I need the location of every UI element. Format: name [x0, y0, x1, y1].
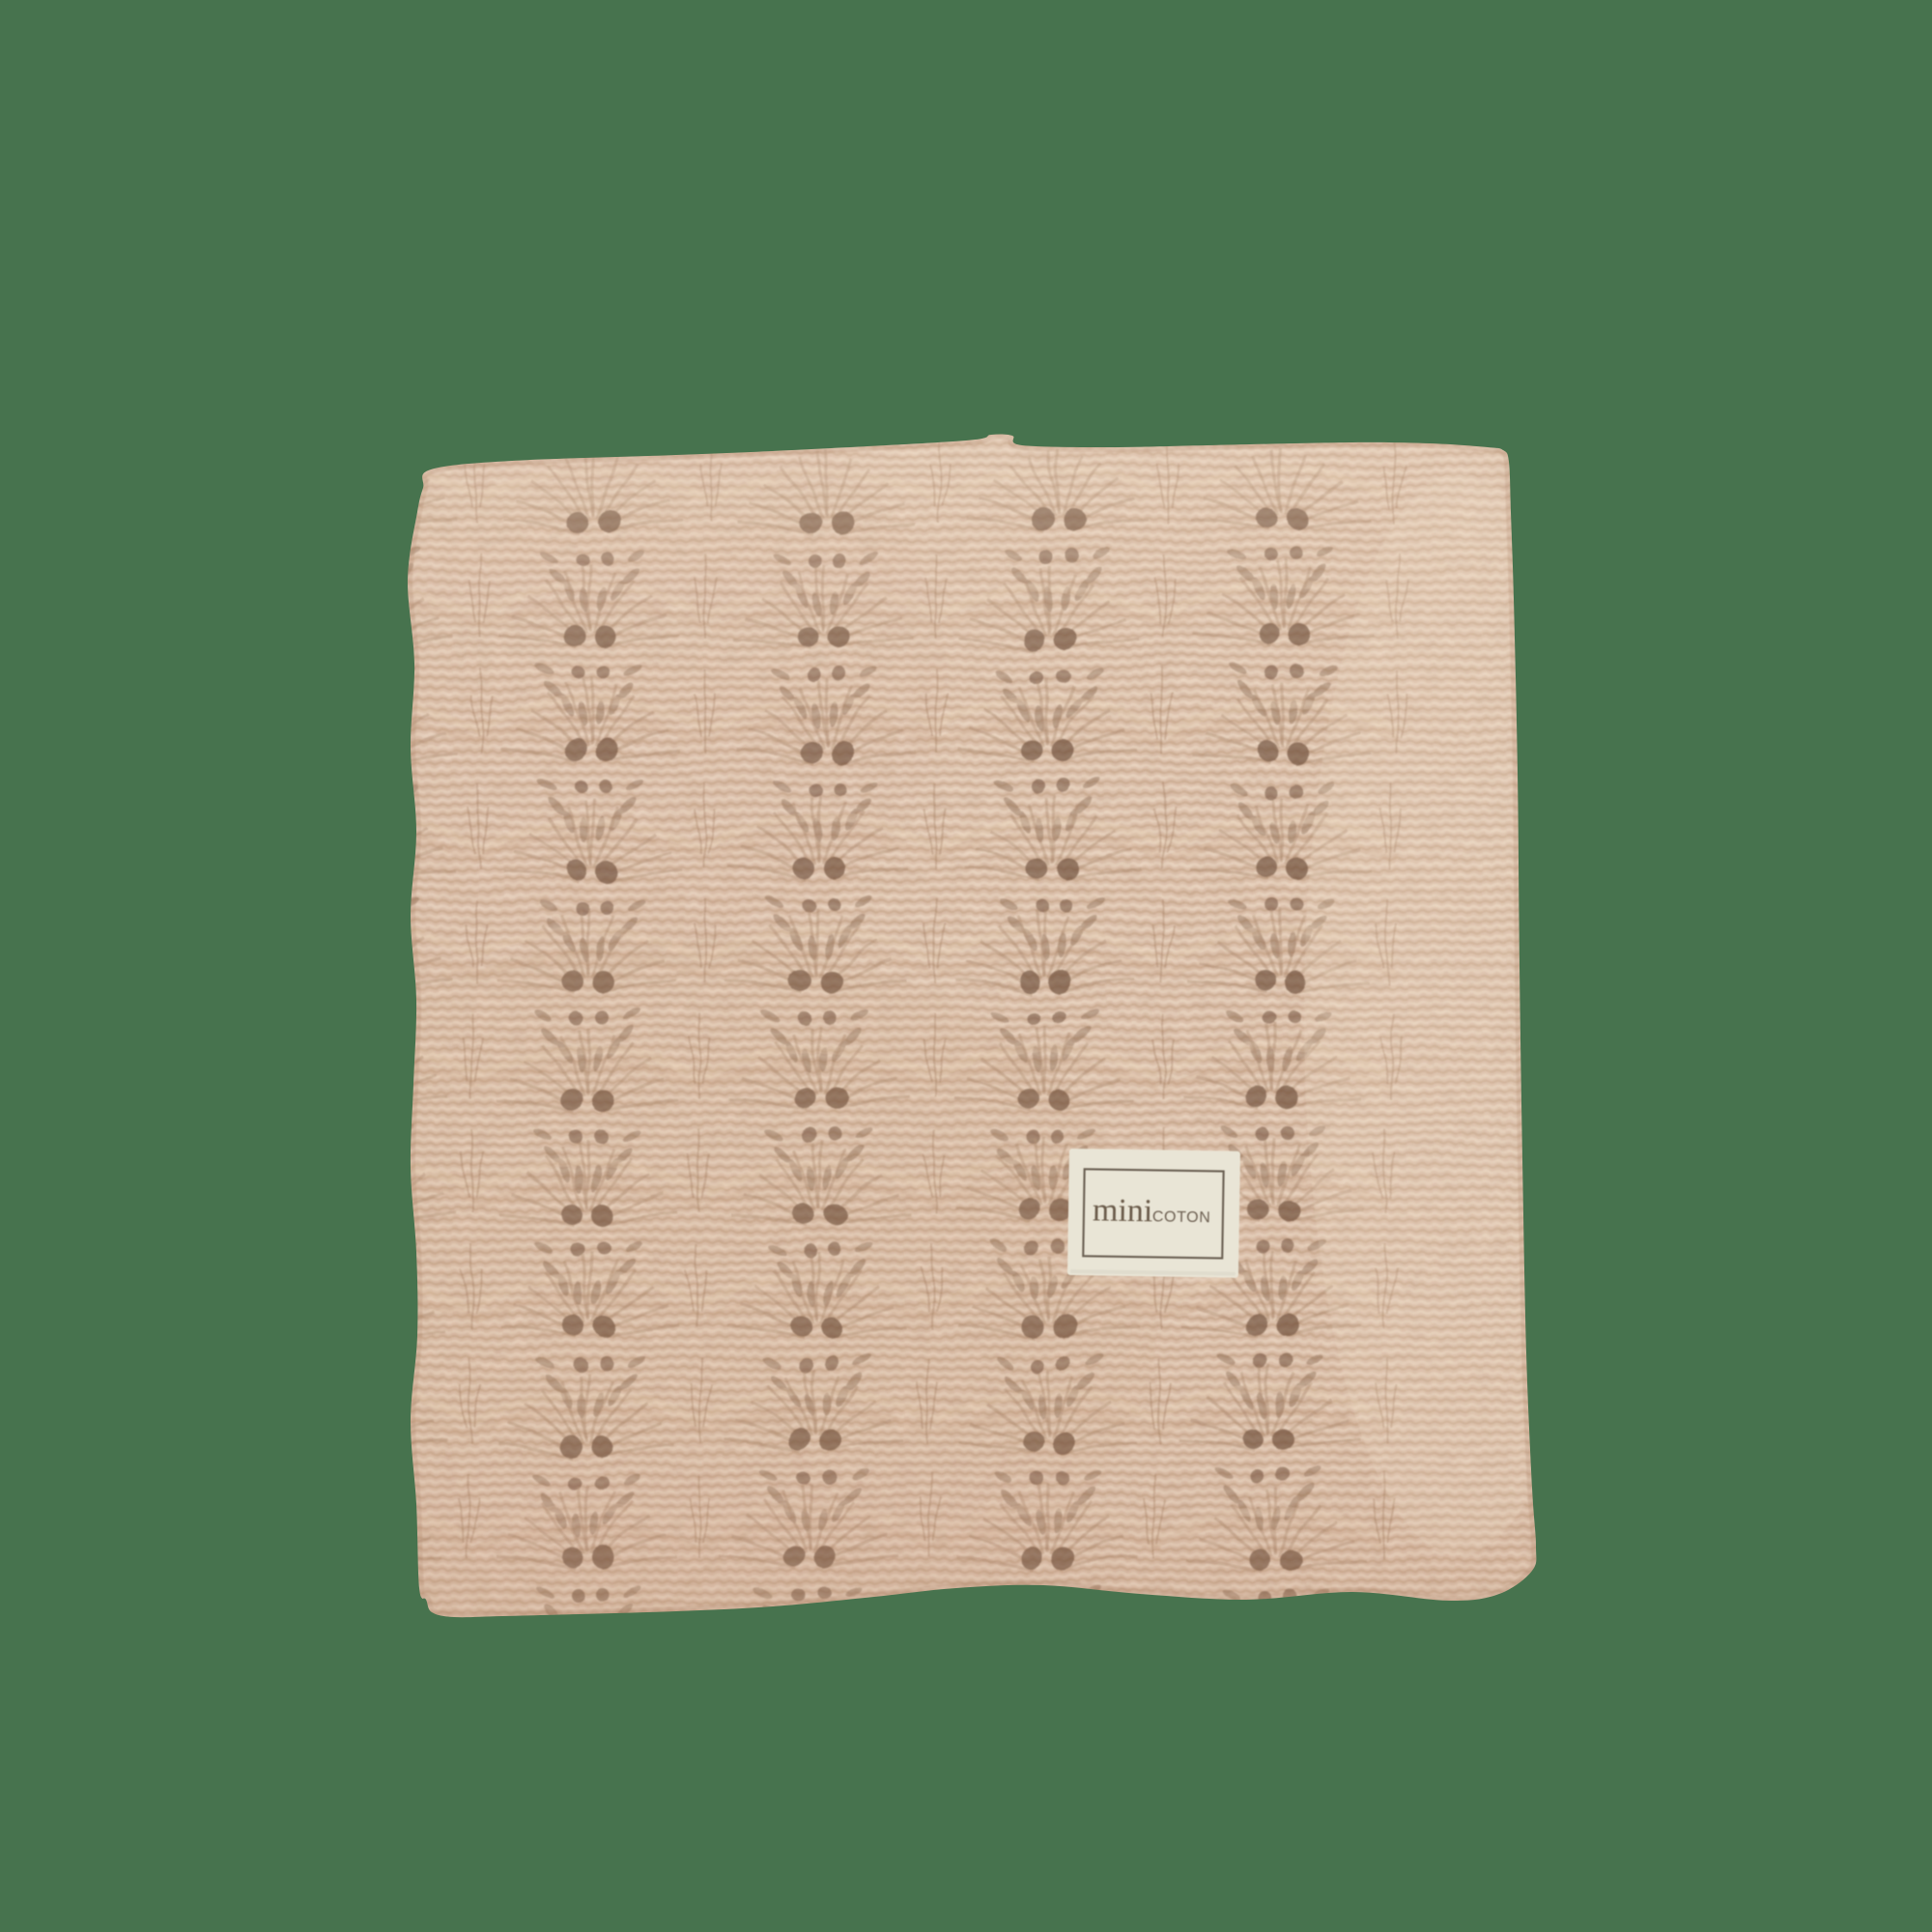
svg-text:COTON: COTON	[1152, 1208, 1211, 1226]
svg-text:mini: mini	[1093, 1192, 1153, 1229]
